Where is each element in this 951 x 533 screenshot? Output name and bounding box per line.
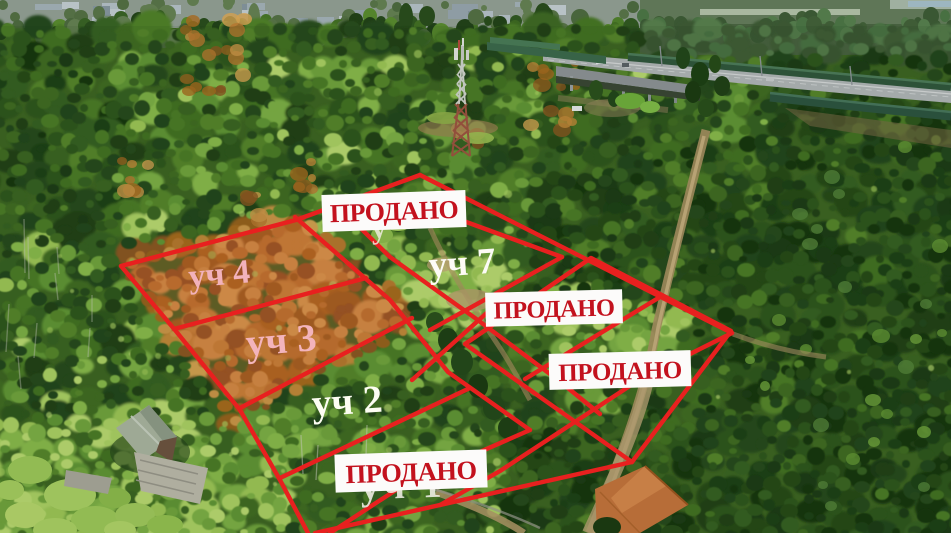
svg-text:уч 4: уч 4 xyxy=(187,253,252,295)
svg-text:ПРОДАНО: ПРОДАНО xyxy=(558,357,682,387)
svg-text:уч 7: уч 7 xyxy=(427,241,497,287)
svg-text:ПРОДАНО: ПРОДАНО xyxy=(345,455,477,490)
svg-text:уч 2: уч 2 xyxy=(310,378,384,426)
svg-text:ПРОДАНО: ПРОДАНО xyxy=(493,294,615,324)
svg-text:уч 3: уч 3 xyxy=(244,316,318,365)
svg-text:ПРОДАНО: ПРОДАНО xyxy=(329,195,458,228)
